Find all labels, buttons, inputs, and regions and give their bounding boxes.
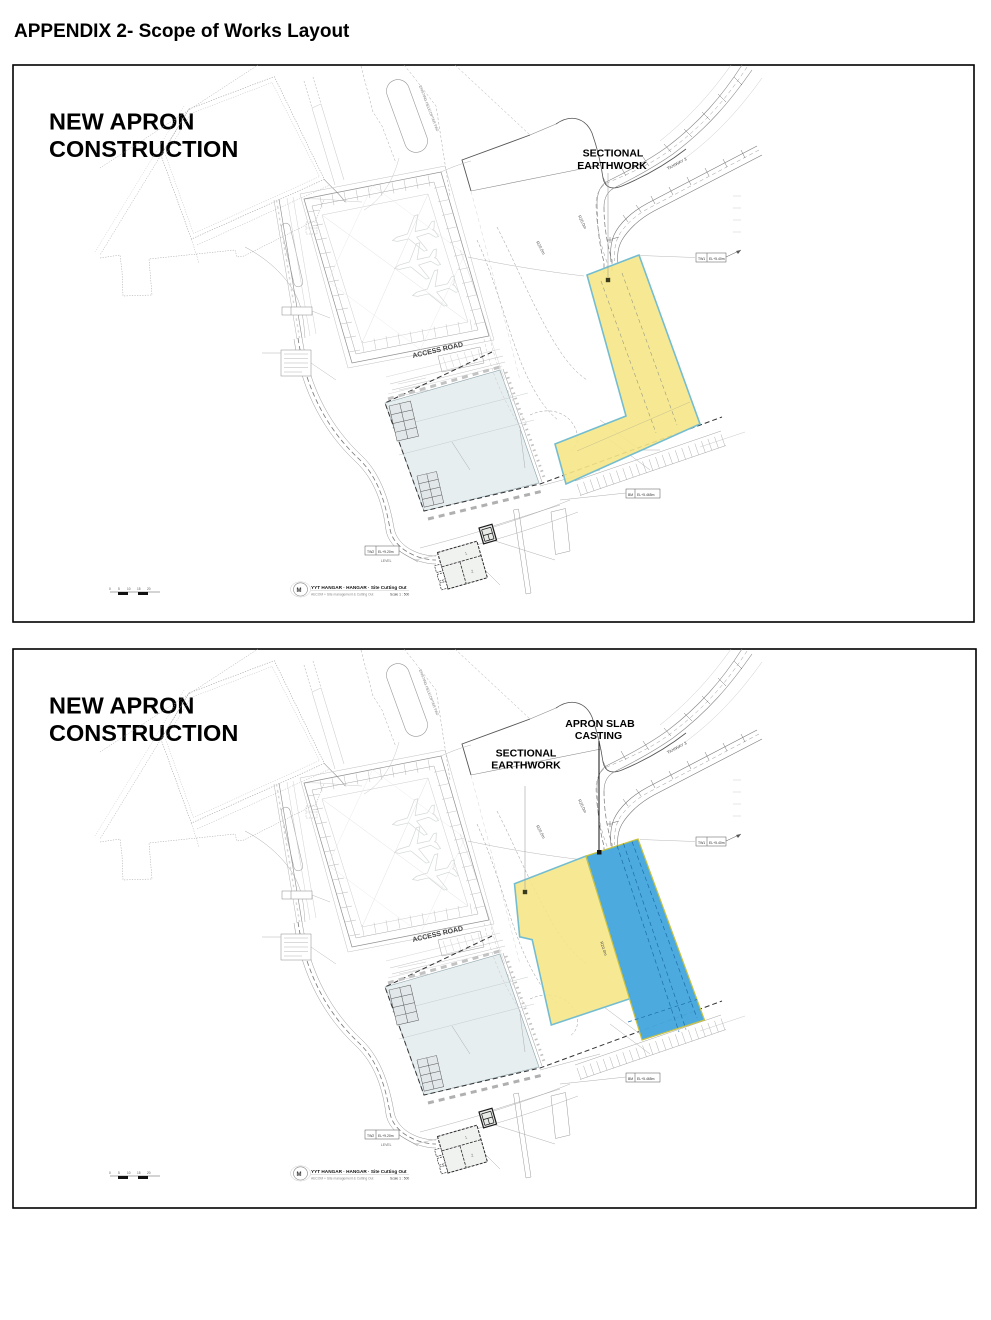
svg-text:APRON SLAB: APRON SLAB — [565, 718, 635, 730]
svg-text:CASTING: CASTING — [575, 730, 622, 742]
svg-text:SECTIONAL: SECTIONAL — [583, 148, 644, 160]
svg-text:EARTHWORK: EARTHWORK — [491, 760, 561, 772]
svg-text:EARTHWORK: EARTHWORK — [577, 160, 647, 172]
svg-text:SECTIONAL: SECTIONAL — [496, 748, 557, 760]
svg-text:APPENDIX 2- Scope of Works Lay: APPENDIX 2- Scope of Works Layout — [14, 21, 350, 42]
